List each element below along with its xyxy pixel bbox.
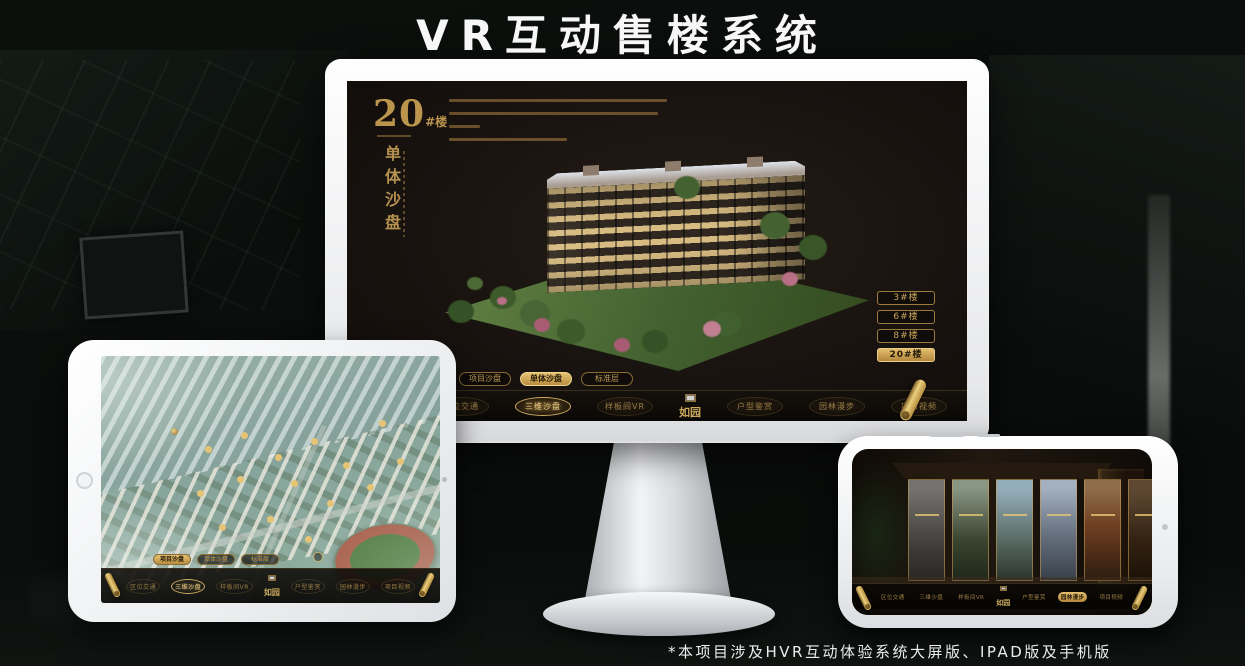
phone-screen: 区位交通 三维沙盘 样板间VR 如园 户型鉴赏 园林漫步 项目视频 [852,449,1152,615]
phone-nav-3d-sandtable[interactable]: 三维沙盘 [917,592,947,602]
roof-dormer [583,165,599,176]
model-trees [467,277,483,290]
building-3d-model[interactable] [547,160,805,300]
sandtable-subtabs: 项目沙盘 单体沙盘 标准层 [459,372,633,386]
phone-nav-project-video[interactable]: 项目视频 [1096,592,1126,602]
building-number-markers[interactable] [171,428,178,435]
floor-button-8[interactable]: 8#楼 [877,329,935,343]
subtab-standard-floor[interactable]: 标准层 [581,372,633,386]
description-line [449,112,658,115]
version-footnote: *本项目涉及HVR互动体验系统大屏版、IPAD版及手机版 [668,641,1112,662]
building-number: 20 [373,93,425,135]
brand-seal-icon [1000,586,1007,591]
floor-button-6[interactable]: 6#楼 [877,310,935,324]
ipad-subtab-project-sandtable[interactable]: 项目沙盘 [153,554,191,565]
subtab-project-sandtable[interactable]: 项目沙盘 [459,372,511,386]
phone-nav-garden-walk[interactable]: 园林漫步 [1058,592,1088,602]
gallery-panel-landscape[interactable] [996,479,1033,581]
nav-showroom-vr[interactable]: 样板间VR [597,397,653,416]
description-line [449,138,567,141]
brand-seal-icon [685,394,696,402]
gallery-panel-courtyard[interactable] [908,479,945,581]
floor-button-3[interactable]: 3#楼 [877,291,935,305]
page-title: VR互动售楼系统 [0,2,1245,63]
ipad-screen: 项目沙盘 单体沙盘 标准层 区位交通 三维沙盘 样板间VR 如园 户型鉴赏 园林… [101,356,440,603]
ipad-nav-floorplan-gallery[interactable]: 户型鉴赏 [291,579,325,594]
panel-caption [959,514,983,516]
heading-english-caption [377,135,411,137]
ipad-subtab-single-building[interactable]: 单体沙盘 [197,554,235,565]
nav-floorplan-gallery[interactable]: 户型鉴赏 [727,397,783,416]
brand-logo: 如园 [679,394,701,419]
subtab-single-building[interactable]: 单体沙盘 [520,372,572,386]
brand-name: 如园 [679,406,701,419]
brand-name: 如园 [996,598,1010,607]
section-title-vertical: 单体沙盘 [379,145,403,237]
background-city-texture [989,55,1245,455]
nav-3d-sandtable[interactable]: 三维沙盘 [515,397,571,416]
building-unit: #楼 [425,115,447,129]
roof-dormer [665,161,681,172]
ipad-nav-showroom-vr[interactable]: 样板间VR [216,579,253,594]
gallery-scroll-panels [908,479,1152,581]
gallery-panel-building[interactable] [1040,479,1077,581]
phone-main-navbar: 区位交通 三维沙盘 样板间VR 如园 户型鉴赏 园林漫步 项目视频 [852,583,1152,609]
section-title-english [403,151,405,237]
panel-caption [915,514,939,516]
gallery-panel-shelf[interactable] [1128,479,1152,581]
ipad-nav-3d-sandtable[interactable]: 三维沙盘 [171,579,205,594]
gallery-panel-autumn[interactable] [1084,479,1121,581]
panel-caption [1091,514,1115,516]
ipad-home-button[interactable] [76,472,93,489]
phone-power-button [978,434,1000,437]
ipad-brand-logo: 如园 [264,575,280,598]
phone-nav-floorplan-gallery[interactable]: 户型鉴赏 [1019,592,1049,602]
brand-name: 如园 [264,587,280,597]
building-heading: 20#楼 [373,93,447,135]
panel-caption [1135,514,1152,516]
description-line [449,125,480,128]
ipad-main-navbar: 区位交通 三维沙盘 样板间VR 如园 户型鉴赏 园林漫步 项目视频 [101,568,440,603]
ipad-camera-dot [442,477,447,482]
panel-caption [1047,514,1071,516]
gallery-panel-garden[interactable] [952,479,989,581]
aerial-haze-overlay [101,356,440,603]
phone-nav-showroom-vr[interactable]: 样板间VR [955,592,987,602]
ipad-device: 项目沙盘 单体沙盘 标准层 区位交通 三维沙盘 样板间VR 如园 户型鉴赏 园林… [68,340,456,622]
interior-roof-beam [892,463,1112,479]
model-flowers [497,297,507,305]
phone-volume-button [930,434,964,437]
promo-canvas: VR互动售楼系统 20#楼 单体沙盘 [0,0,1245,666]
phone-nav-location-traffic[interactable]: 区位交通 [878,592,908,602]
monitor-stand-base [543,592,775,636]
description-paragraph [449,99,667,151]
ipad-nav-project-video[interactable]: 项目视频 [381,579,415,594]
floor-selector: 3#楼 6#楼 8#楼 20#楼 [877,291,937,367]
background-plaque [79,230,188,319]
roof-dormer [747,156,763,167]
compass-icon[interactable] [313,552,323,562]
monitor-stand-neck [585,441,731,599]
ipad-nav-garden-walk[interactable]: 园林漫步 [336,579,370,594]
phone-brand-logo: 如园 [996,586,1010,608]
ipad-nav-location-traffic[interactable]: 区位交通 [126,579,160,594]
brand-seal-icon [268,575,276,581]
ipad-sandtable-subtabs: 项目沙盘 单体沙盘 标准层 [153,554,279,565]
phone-camera-dot [1162,524,1168,530]
panel-caption [1003,514,1027,516]
smartphone-device: 区位交通 三维沙盘 样板间VR 如园 户型鉴赏 园林漫步 项目视频 [838,436,1178,628]
ipad-subtab-standard-floor[interactable]: 标准层 [241,554,279,565]
description-line [449,99,667,102]
nav-garden-walk[interactable]: 园林漫步 [809,397,865,416]
floor-button-20[interactable]: 20#楼 [877,348,935,362]
building-facade-lit-windows [547,175,805,293]
